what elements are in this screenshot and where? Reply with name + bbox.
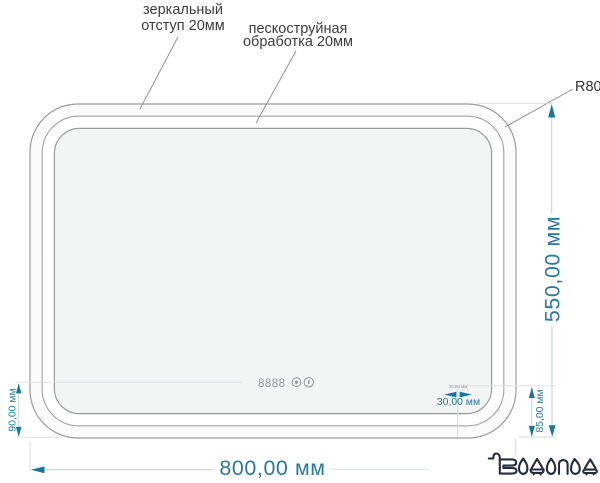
svg-text:30,00 мм: 30,00 мм xyxy=(449,384,468,389)
svg-text:800,00 мм: 800,00 мм xyxy=(219,456,325,480)
svg-text:отступ 20мм: отступ 20мм xyxy=(141,18,224,34)
svg-text:R80: R80 xyxy=(575,79,600,95)
svg-text:зеркальный: зеркальный xyxy=(143,2,223,18)
svg-text:90,00 мм: 90,00 мм xyxy=(7,388,18,431)
svg-text:550,00 мм: 550,00 мм xyxy=(541,216,565,322)
svg-text:85,00 мм: 85,00 мм xyxy=(535,389,546,432)
svg-text:8888: 8888 xyxy=(258,378,286,390)
svg-text:30,00 мм: 30,00 мм xyxy=(437,397,480,408)
svg-text:обработка 20мм: обработка 20мм xyxy=(243,34,353,50)
